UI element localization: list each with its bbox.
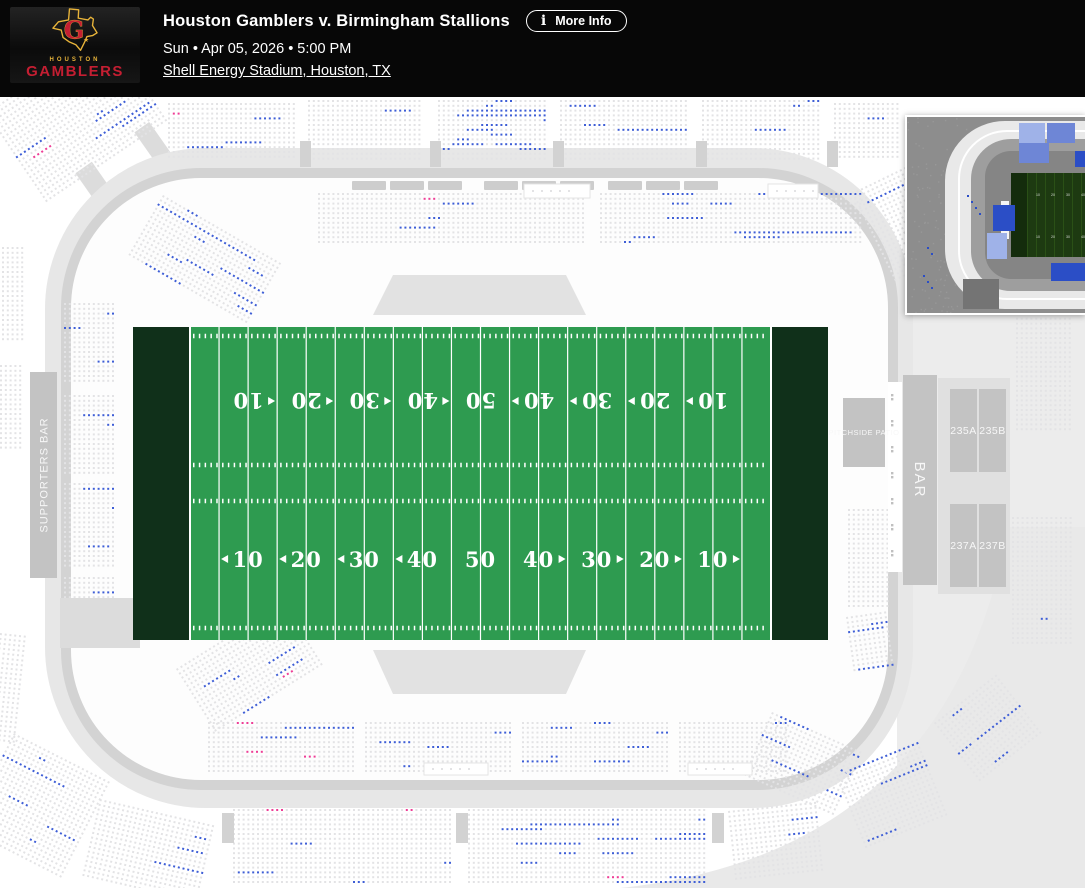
logo-team: GAMBLERS: [26, 64, 124, 80]
supporters-bar-block-label: SUPPORTERS BAR: [38, 417, 50, 532]
pitchside-patio-block-label: PITCHSIDE PATIO: [829, 428, 900, 437]
section-235A-label: 235A: [950, 425, 977, 437]
overview-minimap-canvas: 101020203030404050504040303020201010: [907, 117, 1085, 313]
rail-seats-strip: [608, 181, 642, 190]
minimap-section-block: [1075, 151, 1085, 167]
stair-block: [827, 141, 838, 167]
rail-seats-strip: [352, 181, 386, 190]
south-tunnel: [373, 650, 586, 694]
football-field: 102030405040302010102030405040302010: [133, 327, 828, 640]
venue-link[interactable]: Shell Energy Stadium, Houston, TX: [163, 63, 391, 79]
rail-seats-strip: [390, 181, 424, 190]
minimap-section-block: [963, 279, 999, 309]
minimap-yard-number: 30: [1066, 235, 1070, 239]
texas-logo-icon: G ★: [51, 8, 99, 54]
stage-block[interactable]: [60, 598, 140, 648]
rail-seats-strip: [484, 181, 518, 190]
stair-block: [300, 141, 311, 167]
section-237A-label: 237A: [950, 540, 977, 552]
minimap-yard-number: 40: [1081, 193, 1085, 197]
end-zone-left: [133, 327, 190, 640]
minimap-section-block: [1051, 263, 1085, 281]
seat-section[interactable]: [848, 509, 888, 607]
minimap-section-block: [993, 205, 1015, 231]
rail-seats-strip: [428, 181, 462, 190]
rail-seats-strip: [684, 181, 718, 190]
yard-number: 50: [465, 547, 496, 572]
stair-block: [456, 813, 468, 843]
minimap-section-block: [1019, 143, 1049, 163]
yard-number: 50: [465, 388, 496, 413]
rail-seats-strip: [646, 181, 680, 190]
event-title: Houston Gamblers v. Birmingham Stallions: [163, 12, 510, 31]
section-237B-label: 237B: [979, 540, 1006, 552]
overview-minimap[interactable]: 101020203030404050504040303020201010: [905, 115, 1085, 315]
logo-star-icon: ★: [83, 37, 89, 44]
rail-seat-box[interactable]: [768, 184, 818, 198]
stair-block: [712, 813, 724, 843]
minimap-section-block: [987, 233, 1007, 259]
minimap-yard-number: 10: [1036, 193, 1040, 197]
stair-block: [696, 141, 707, 167]
minimap-yard-number: 40: [1081, 235, 1085, 239]
minimap-section-block: [1047, 123, 1075, 143]
info-icon: i: [541, 15, 546, 27]
logo-letter: G: [64, 16, 84, 44]
minimap-yard-number: 30: [1066, 193, 1070, 197]
minimap-yard-number: 20: [1051, 193, 1055, 197]
bar-block-label: BAR: [911, 462, 928, 499]
section-235B-label: 235B: [979, 425, 1006, 437]
stair-block: [430, 141, 441, 167]
more-info-button[interactable]: i More Info: [526, 10, 627, 32]
event-datetime: Sun • Apr 05, 2026 • 5:00 PM: [163, 41, 627, 57]
minimap-yard-number: 10: [1036, 235, 1040, 239]
team-logo: G ★ HOUSTON GAMBLERS: [10, 7, 140, 83]
minimap-yard-number: 20: [1051, 235, 1055, 239]
end-zone-right: [771, 327, 828, 640]
north-tunnel: [373, 275, 586, 315]
event-header: G ★ HOUSTON GAMBLERS Houston Gamblers v.…: [0, 0, 1085, 97]
stair-block: [222, 813, 234, 843]
accessible-seating-column[interactable]: [888, 382, 902, 572]
stair-block: [553, 141, 564, 167]
more-info-label: More Info: [555, 14, 611, 28]
minimap-section-block: [1019, 123, 1045, 143]
